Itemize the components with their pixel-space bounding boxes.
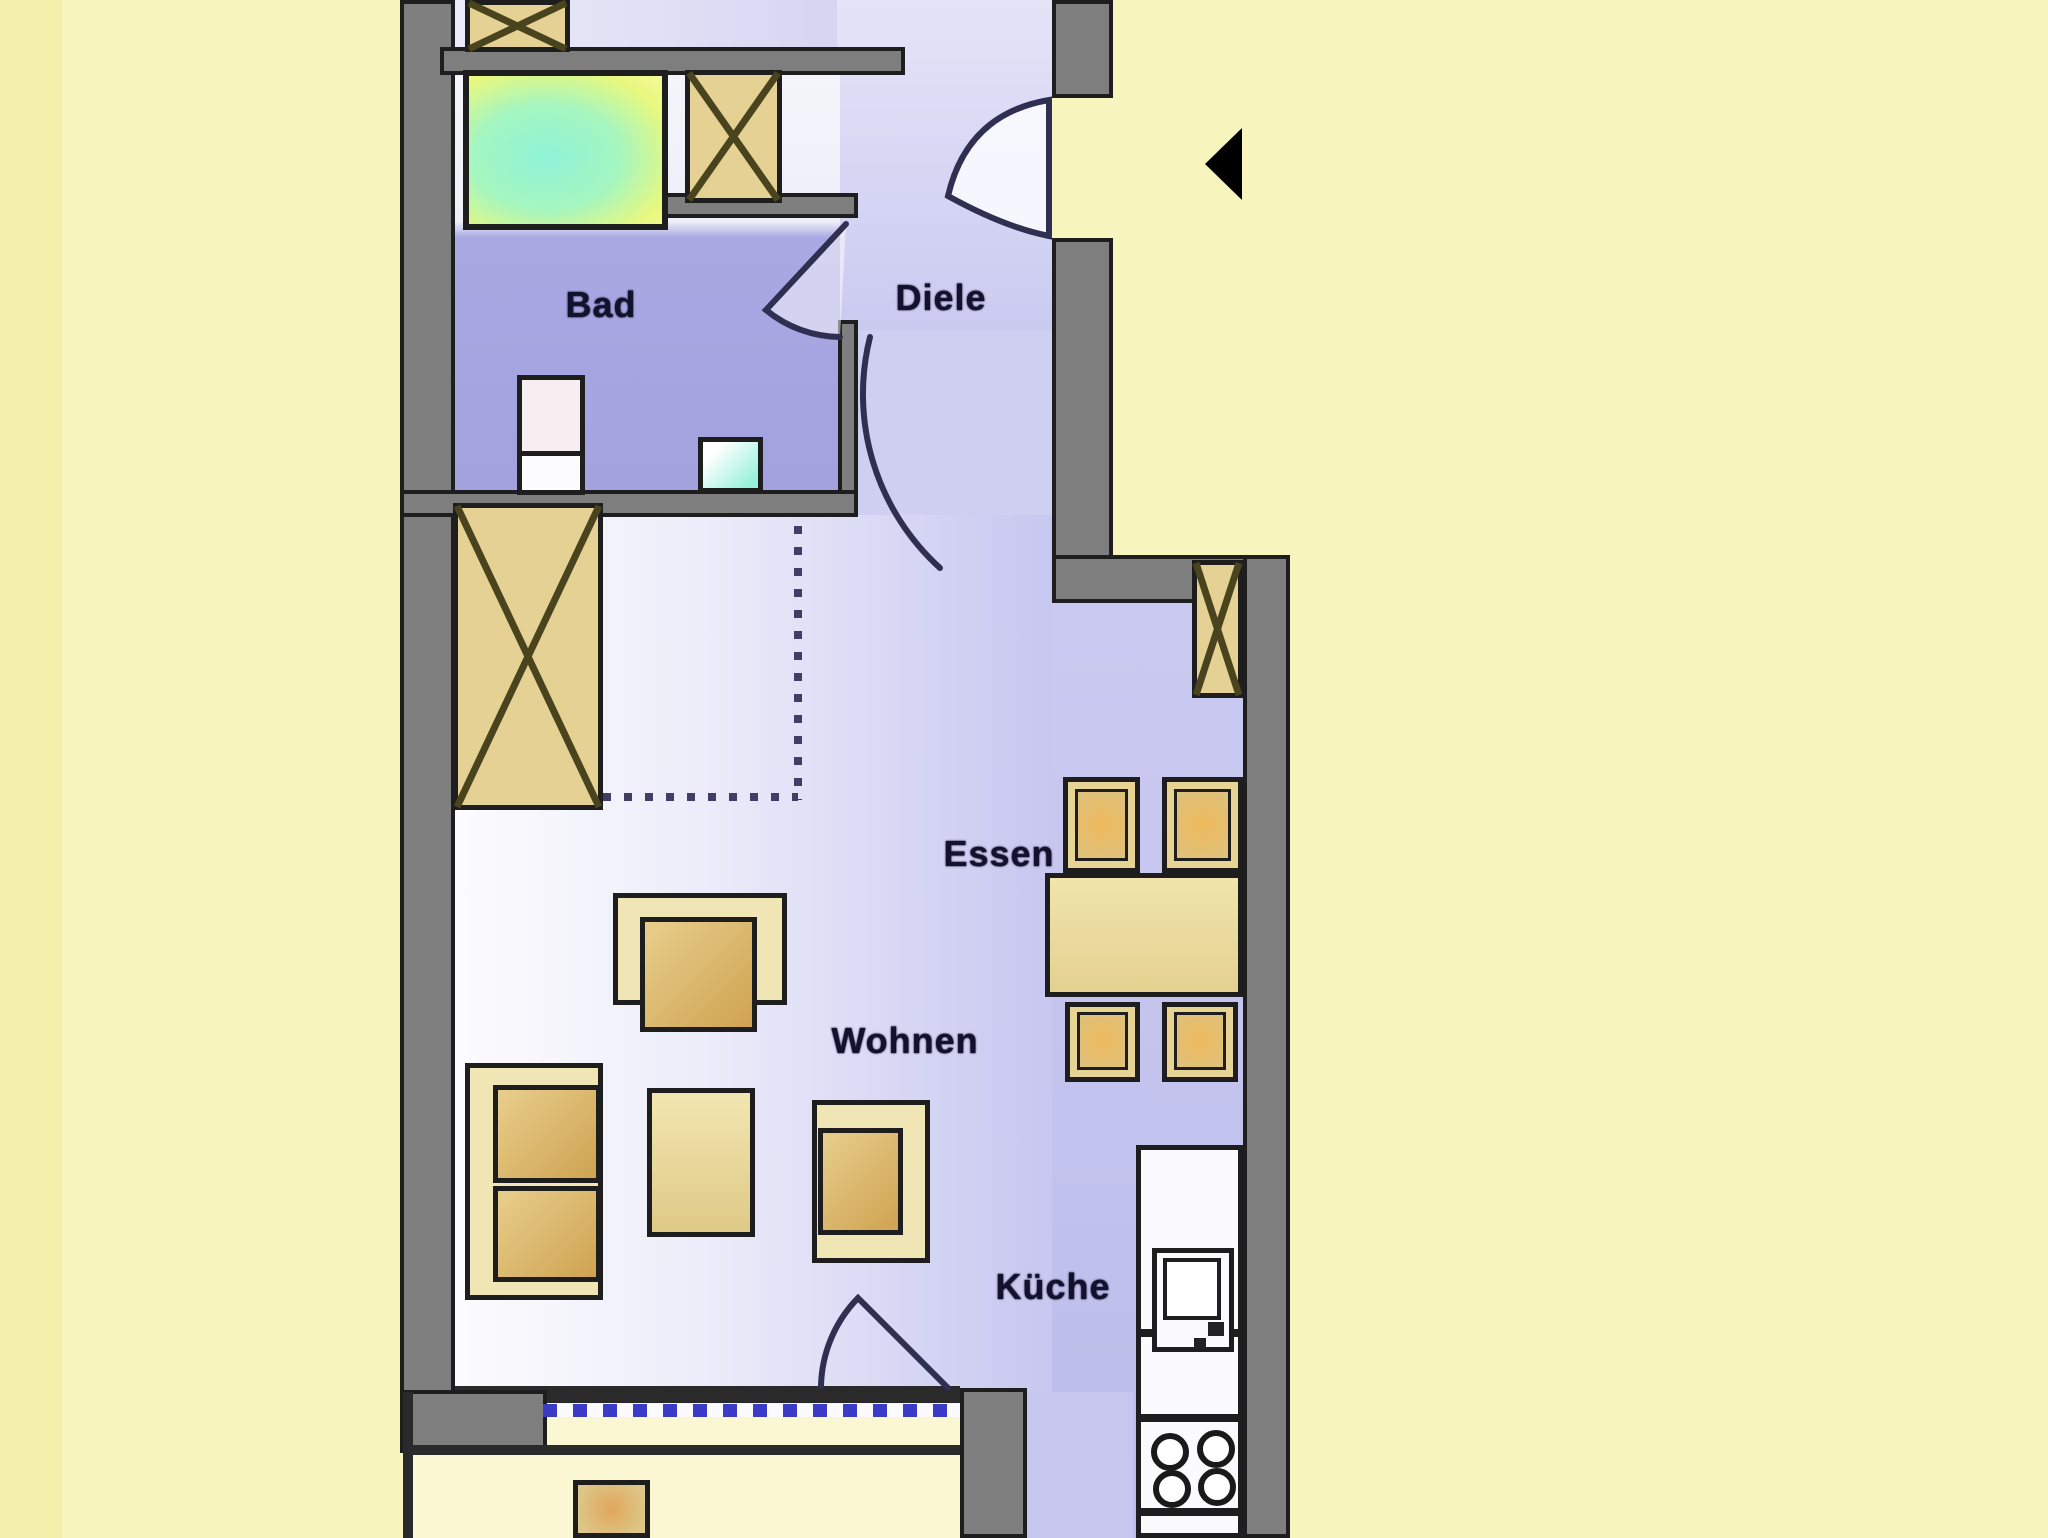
floor-passage: [857, 330, 1052, 520]
shower-tray: [463, 70, 668, 230]
wall-bath-right: [838, 320, 858, 495]
wall-balcony-block: [400, 1390, 547, 1453]
shaft-top-left: [465, 0, 570, 52]
room-label-dining: Essen: [936, 831, 1062, 877]
sink-faucet-a: [1208, 1322, 1224, 1336]
toilet-cistern: [517, 451, 585, 495]
coffee-table: [647, 1088, 755, 1237]
dining-chair-3-seat: [1077, 1012, 1128, 1070]
dining-chair-1-seat: [1075, 789, 1128, 861]
wardrobe-living: [453, 503, 603, 810]
balcony-planter: [573, 1480, 650, 1538]
floor-kitchen-walkway: [1027, 1392, 1133, 1538]
kitchen-separator-2: [1136, 1414, 1243, 1422]
sink-faucet-b: [1194, 1338, 1206, 1348]
north-arrow: [1205, 128, 1242, 200]
dining-chair-4-seat: [1174, 1012, 1226, 1070]
dining-table: [1045, 873, 1243, 997]
kitchen-separator-3: [1136, 1508, 1243, 1516]
armchair-right-seat: [818, 1128, 903, 1235]
room-label-kitchen: Küche: [986, 1263, 1120, 1311]
wall-entrance-bottom: [1052, 238, 1113, 603]
room-label-hallway: Diele: [886, 275, 996, 321]
armchair-top-seat: [640, 917, 757, 1032]
bg-left-strip: [0, 0, 62, 1538]
balcony-edge-vertical: [403, 1392, 413, 1538]
balcony-edge-horizontal: [403, 1445, 960, 1455]
sink-basin: [1163, 1258, 1221, 1320]
storage-divider-vertical: [794, 505, 802, 800]
wall-entrance-top: [1052, 0, 1113, 98]
room-label-living: Wohnen: [823, 1017, 987, 1065]
sofa-seat-2: [493, 1186, 601, 1282]
washbasin: [698, 437, 763, 493]
room-label-bathroom: Bad: [556, 282, 646, 328]
shaft-window-right: [1192, 560, 1243, 698]
wall-right-outer: [1243, 555, 1290, 1538]
shaft-bathroom: [685, 70, 782, 203]
wall-left-outer: [400, 0, 455, 1450]
floor-plan: Bad Diele Essen Wohnen Küche: [0, 0, 2048, 1538]
window-dashed-line: [543, 1404, 960, 1417]
wall-balcony-column: [960, 1388, 1027, 1538]
sofa-seat-1: [493, 1085, 601, 1183]
storage-divider-horizontal: [603, 793, 798, 801]
dining-chair-2-seat: [1174, 789, 1231, 861]
